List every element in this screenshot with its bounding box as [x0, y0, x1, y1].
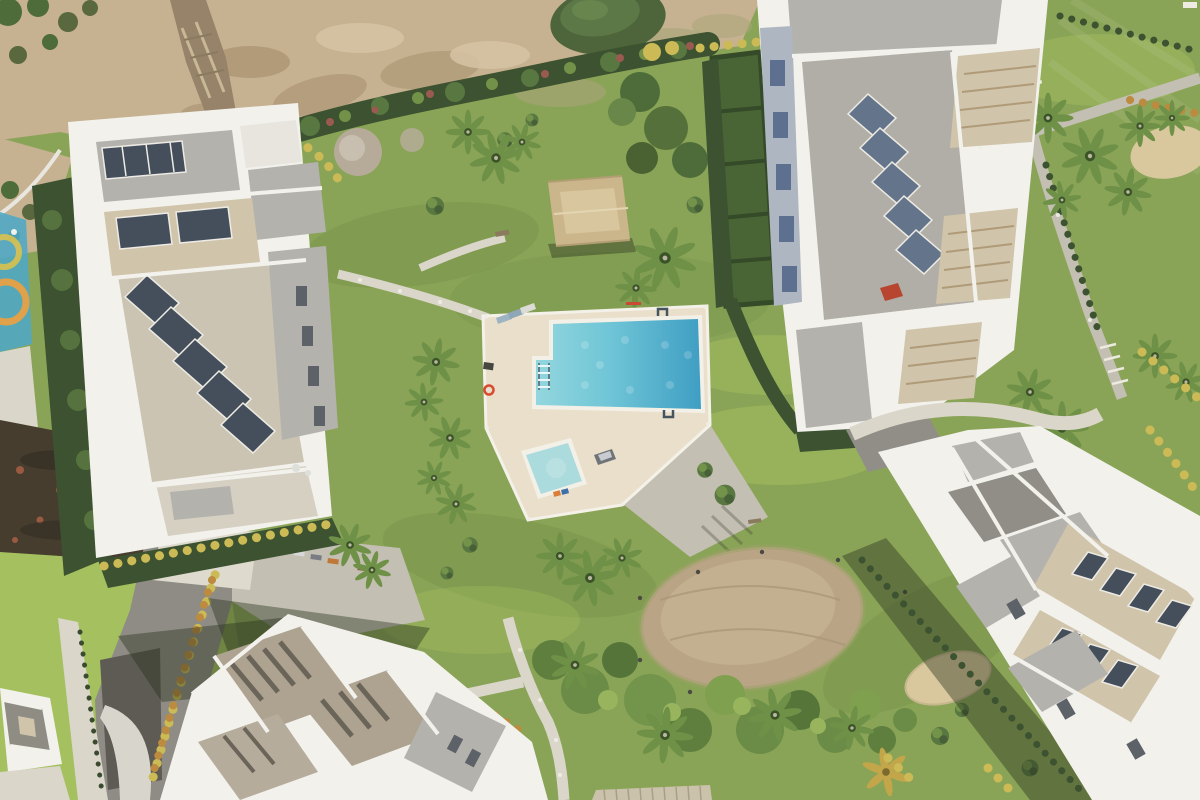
white-bench [1183, 2, 1197, 8]
satellite-dish [292, 464, 300, 472]
aerial-photograph: Aerial drone view of a modern white apar… [0, 0, 1200, 800]
corner-driveway [0, 766, 70, 800]
deck-marker [626, 302, 641, 305]
aerial-photo-stage: Aerial drone view of a modern white apar… [0, 0, 1200, 800]
bbq-grill [483, 362, 494, 370]
apartment-building-top-left [68, 103, 338, 558]
pool-house [548, 176, 636, 258]
